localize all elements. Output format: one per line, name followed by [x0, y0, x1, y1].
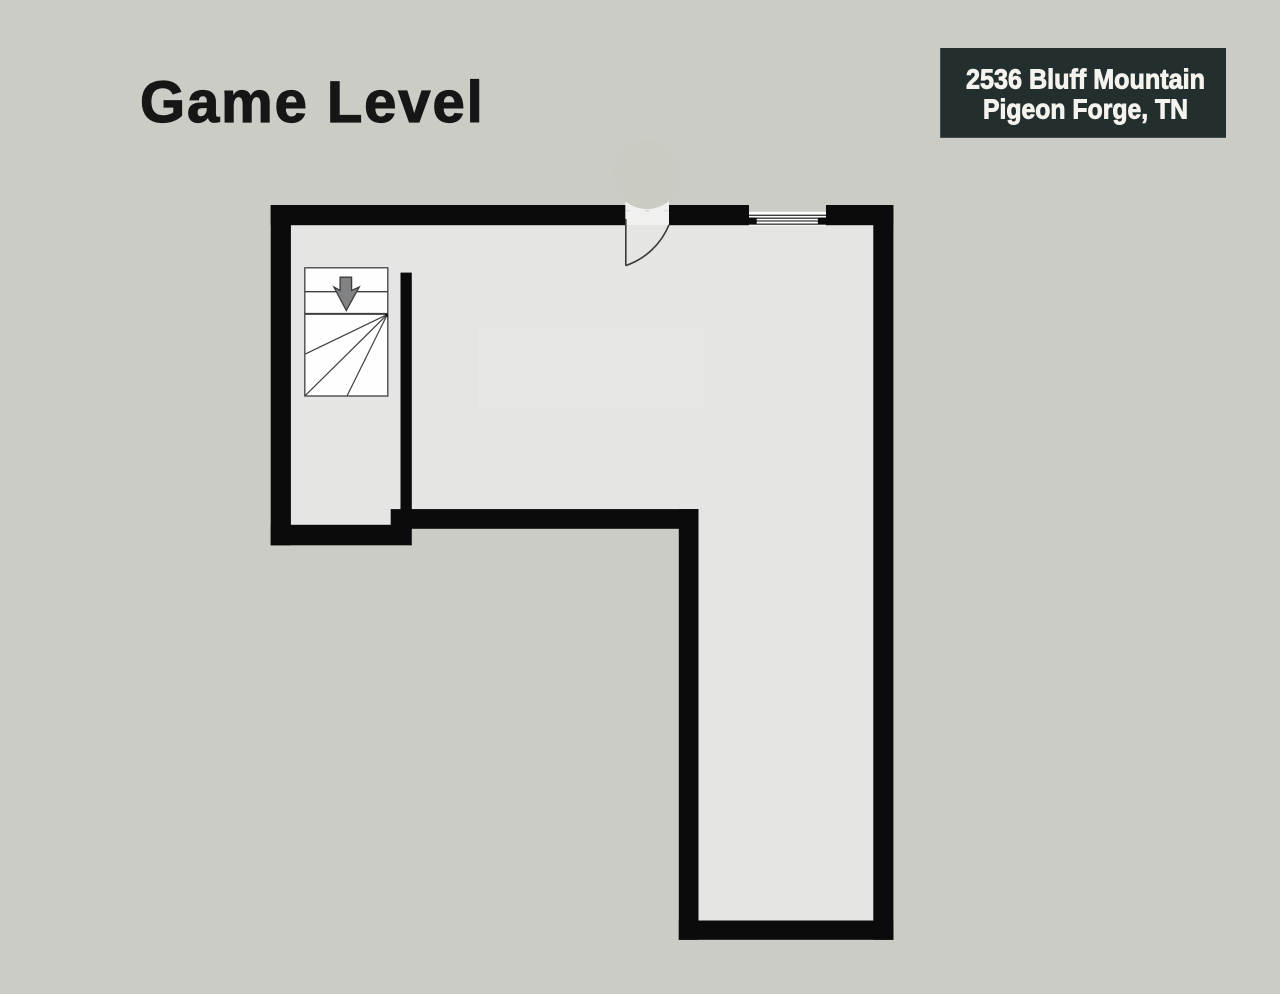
svg-text:Game Level: Game Level: [140, 70, 485, 135]
svg-text:2536 Bluff Mountain: 2536 Bluff Mountain: [966, 63, 1205, 94]
svg-text:Pigeon Forge, TN: Pigeon Forge, TN: [983, 94, 1188, 125]
